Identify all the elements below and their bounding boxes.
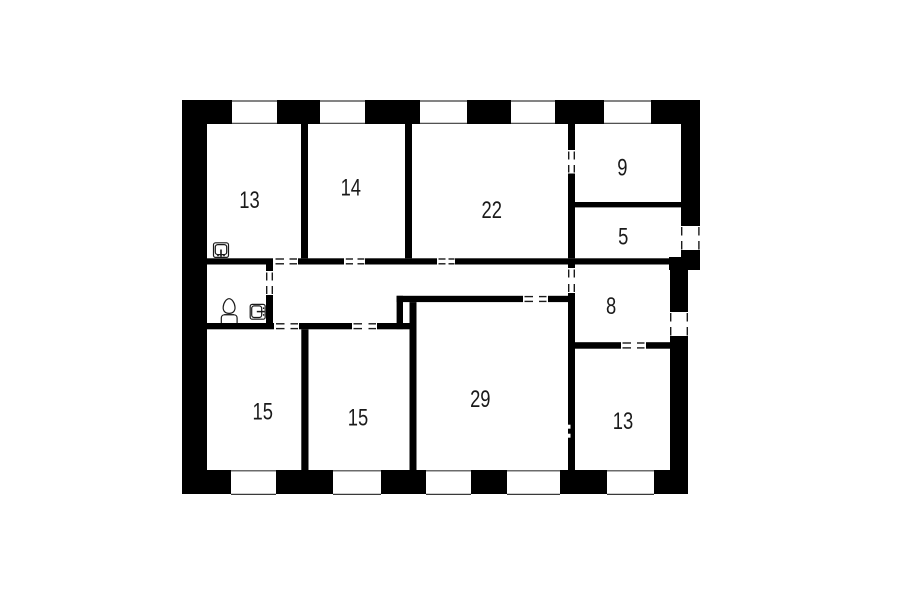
svg-text:5: 5 <box>618 222 628 250</box>
svg-text:13: 13 <box>613 406 633 434</box>
svg-text:15: 15 <box>252 397 272 425</box>
svg-text:9: 9 <box>617 153 627 181</box>
svg-text:15: 15 <box>348 403 368 431</box>
svg-text:14: 14 <box>341 173 361 201</box>
svg-text:13: 13 <box>239 185 259 213</box>
svg-text:29: 29 <box>470 385 490 413</box>
svg-text:8: 8 <box>606 291 616 319</box>
svg-text:22: 22 <box>481 195 501 223</box>
